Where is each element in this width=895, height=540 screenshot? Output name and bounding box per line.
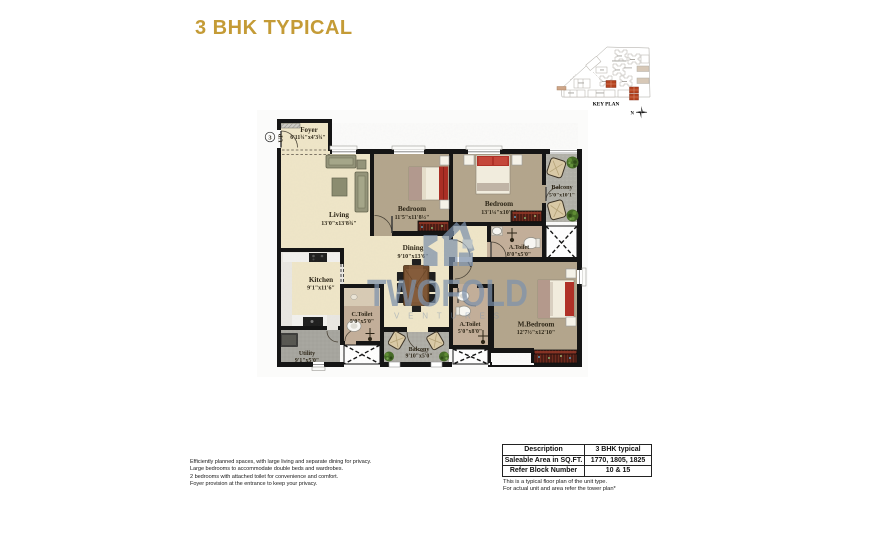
svg-text:N: N	[631, 112, 635, 117]
svg-text:A.Toilet: A.Toilet	[509, 245, 529, 251]
svg-text:9'1"x11'6": 9'1"x11'6"	[307, 286, 335, 292]
svg-text:9'10"x5'0": 9'10"x5'0"	[405, 354, 432, 360]
svg-text:Bedroom: Bedroom	[485, 200, 513, 208]
svg-text:11'5"x11'8½": 11'5"x11'8½"	[395, 214, 430, 221]
svg-text:Bedroom: Bedroom	[398, 205, 426, 213]
svg-text:KEY PLAN: KEY PLAN	[593, 102, 620, 108]
svg-text:5'0"x8'0": 5'0"x8'0"	[458, 329, 482, 335]
svg-text:13'0"x13'8¾": 13'0"x13'8¾"	[321, 220, 357, 227]
svg-text:12'7½"x12'10": 12'7½"x12'10"	[517, 329, 556, 336]
svg-text:A.Toilet: A.Toilet	[460, 321, 482, 328]
svg-text:UP: UP	[278, 134, 285, 143]
svg-text:9'1"x5'0": 9'1"x5'0"	[295, 358, 319, 364]
svg-text:5'0"x10'1": 5'0"x10'1"	[549, 193, 575, 199]
svg-text:Dining: Dining	[403, 244, 424, 252]
svg-text:Living: Living	[329, 211, 349, 219]
svg-text:Utility: Utility	[299, 351, 315, 357]
svg-text:Balcony: Balcony	[551, 184, 573, 191]
svg-text:TWOFOLD: TWOFOLD	[367, 273, 528, 315]
svg-text:Foyer: Foyer	[300, 126, 318, 134]
svg-text:M.Bedroom: M.Bedroom	[518, 321, 555, 329]
svg-text:5'0"x5'0": 5'0"x5'0"	[350, 319, 374, 325]
svg-text:13'1¼"x10'1": 13'1¼"x10'1"	[481, 210, 517, 216]
svg-text:8'0"x5'0": 8'0"x5'0"	[507, 252, 531, 258]
svg-text:Balcony: Balcony	[409, 347, 430, 353]
svg-text:Kitchen: Kitchen	[309, 276, 333, 284]
svg-text:6'11¾"x4'3¾": 6'11¾"x4'3¾"	[290, 134, 325, 141]
